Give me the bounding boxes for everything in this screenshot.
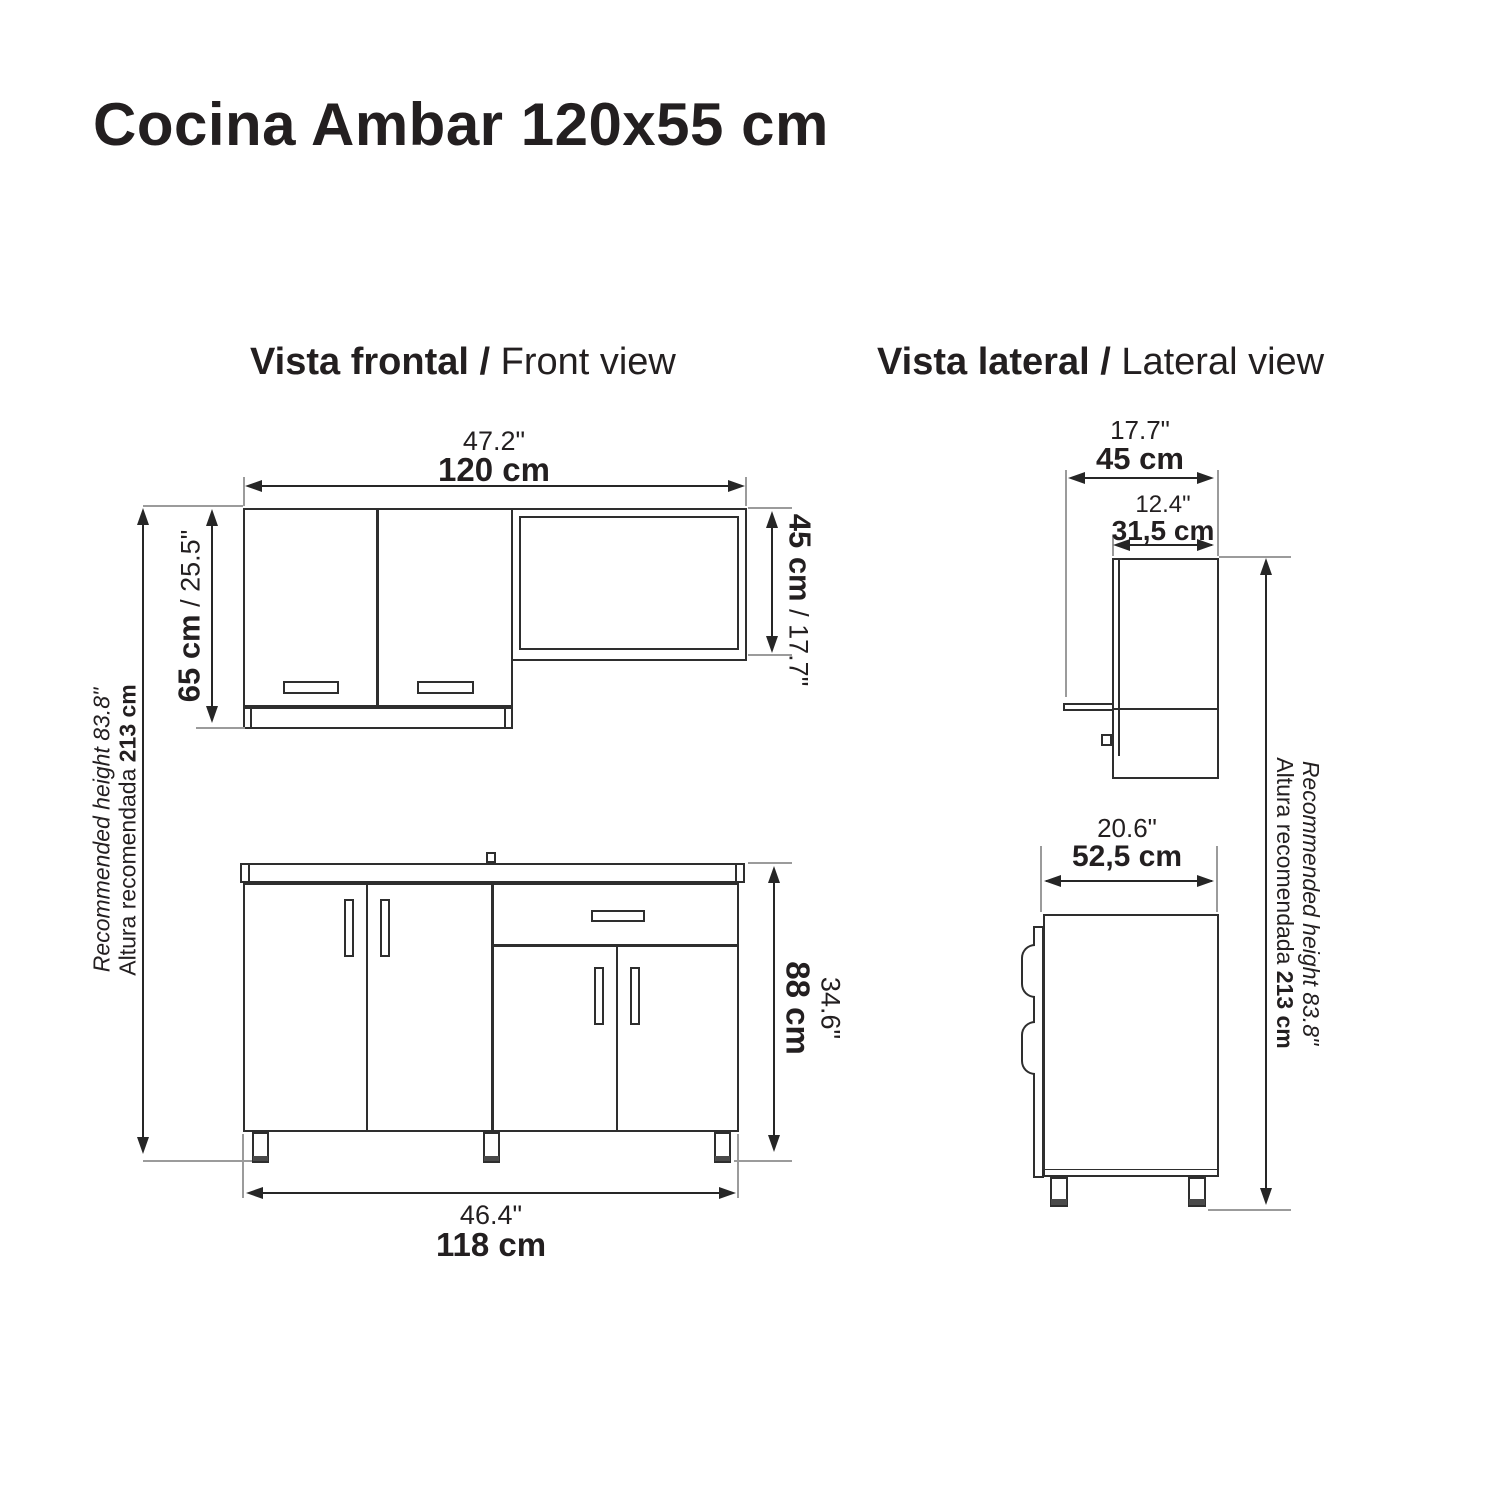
front-upper-door-handle-right — [417, 681, 474, 694]
height-cm: 45 cm — [782, 514, 817, 602]
countertop-cap-left — [248, 863, 250, 883]
extension-line — [196, 727, 245, 729]
dim-arrow — [766, 636, 778, 653]
overall-left-label: Recommended height 83.8" Altura recomend… — [89, 684, 141, 976]
leg-foot — [253, 1156, 268, 1161]
cabinet-depth-label-cm: 31,5 cm — [1112, 515, 1215, 546]
drawer-handle — [591, 910, 645, 922]
overall-right-label: Recommended height 83.8" Altura recomend… — [1271, 757, 1323, 1049]
extension-line — [748, 507, 792, 509]
strip-cap-left — [250, 707, 252, 729]
front-base-door-divider-left — [366, 885, 368, 1130]
leg-foot — [1051, 1199, 1067, 1205]
extension-line — [143, 1160, 252, 1162]
dim-arrow — [766, 511, 778, 528]
upper-right-height-label: 45 cm / 17.7" — [782, 514, 817, 687]
front-base-door-divider-right — [616, 947, 618, 1130]
dim-arrow — [206, 509, 218, 526]
front-heading-primary: Vista frontal — [250, 341, 469, 383]
recommended-height-en: Recommended height 83.8" — [1297, 757, 1323, 1049]
dim-arrow — [1260, 558, 1272, 575]
height-in: 25.5" — [176, 530, 206, 592]
lateral-upper-door-line — [1118, 558, 1120, 756]
recommended-height-es: Altura recomendada 213 cm — [1271, 757, 1297, 1049]
recommended-height-en: Recommended height 83.8" — [89, 684, 115, 976]
dim-arrow — [728, 480, 745, 492]
dim-lateral-depth-line — [1071, 477, 1211, 479]
front-base-section-divider — [491, 885, 494, 1130]
front-upper-door-divider — [376, 508, 379, 707]
front-view-heading: Vista frontal / Front view — [250, 341, 676, 384]
front-open-shelf — [511, 508, 747, 661]
base-height-in: 34.6" — [815, 961, 845, 1055]
leg-foot — [1189, 1199, 1205, 1205]
base-door-handle-2 — [380, 899, 390, 957]
front-upper-base-strip — [243, 707, 513, 729]
front-heading-secondary: Front view — [501, 341, 676, 383]
base-width-label-cm: 118 cm — [436, 1227, 546, 1264]
heading-separator: / — [1090, 341, 1122, 383]
extension-line — [1217, 470, 1219, 556]
height-cm: 65 cm — [172, 614, 207, 702]
lateral-base-leg-front — [1050, 1177, 1068, 1207]
faucet-knob — [486, 852, 496, 863]
lateral-base-leg-back — [1188, 1177, 1206, 1207]
dim-arrow — [1197, 875, 1214, 887]
lateral-shelf-bar — [1063, 703, 1114, 711]
dim-arrow — [1068, 472, 1085, 484]
dim-overall-right-line — [1265, 563, 1267, 1200]
lateral-heading-primary: Vista lateral — [877, 341, 1090, 383]
base-door-handle-4 — [630, 967, 640, 1025]
dim-arrow — [137, 1137, 149, 1154]
dim-arrow — [719, 1187, 736, 1199]
lateral-handle-arc-top — [1021, 944, 1035, 998]
heading-separator: / — [469, 341, 501, 383]
front-upper-door-handle-left — [283, 681, 339, 694]
front-width-label-cm: 120 cm — [438, 452, 550, 489]
lateral-upper-shelf-line — [1112, 708, 1219, 710]
dim-arrow — [137, 508, 149, 525]
lateral-base-bottom-line — [1045, 1169, 1217, 1170]
dim-base-width-line — [250, 1192, 732, 1194]
extension-line — [745, 477, 747, 506]
extension-line — [1219, 556, 1291, 558]
lateral-knob — [1101, 734, 1112, 746]
dim-overall-left-line — [142, 513, 144, 1150]
extension-line — [1208, 1209, 1291, 1211]
base-door-handle-3 — [594, 967, 604, 1025]
front-base-leg-left — [252, 1132, 269, 1163]
dim-base-depth-line — [1046, 880, 1212, 882]
label-separator: / — [783, 602, 813, 625]
dim-arrow — [768, 1135, 780, 1152]
recommended-height-es: Altura recomendada 213 cm — [115, 684, 141, 976]
label-separator: / — [176, 592, 206, 615]
leg-foot — [484, 1156, 499, 1161]
dim-arrow — [1260, 1188, 1272, 1205]
base-height-label: 34.6" 88 cm — [778, 961, 845, 1055]
lateral-base-cabinet — [1043, 914, 1219, 1177]
base-height-cm: 88 cm — [778, 961, 815, 1055]
dim-arrow — [1197, 472, 1214, 484]
lateral-handle-arc-bottom — [1021, 1021, 1035, 1075]
front-open-shelf-inner — [519, 516, 739, 650]
dim-arrow — [206, 706, 218, 723]
lateral-upper-cabinet — [1112, 558, 1219, 779]
lateral-heading-secondary: Lateral view — [1121, 341, 1324, 383]
dimension-diagram: Cocina Ambar 120x55 cm Vista frontal / F… — [0, 0, 1500, 1500]
base-depth-label-in: 20.6" — [1097, 814, 1157, 843]
extension-line — [1065, 470, 1067, 697]
front-base-leg-center — [483, 1132, 500, 1163]
dim-upper-left-height-line — [211, 514, 213, 718]
dim-arrow — [246, 1187, 263, 1199]
dim-arrow — [768, 866, 780, 883]
dim-upper-right-height-line — [771, 514, 773, 650]
base-depth-label-cm: 52,5 cm — [1072, 840, 1182, 874]
strip-cap-right — [504, 707, 506, 729]
dim-arrow — [245, 480, 262, 492]
front-base-leg-right — [714, 1132, 731, 1163]
extension-line — [734, 1160, 792, 1162]
page-title: Cocina Ambar 120x55 cm — [93, 90, 829, 159]
height-in: 17.7" — [783, 624, 813, 686]
lateral-view-heading: Vista lateral / Lateral view — [877, 341, 1324, 384]
extension-line — [737, 1134, 739, 1198]
extension-line — [1040, 846, 1042, 912]
dim-base-height-line — [773, 872, 775, 1146]
leg-foot — [715, 1156, 730, 1161]
extension-line — [242, 1134, 244, 1198]
upper-left-height-label: 65 cm / 25.5" — [173, 530, 208, 703]
extension-line — [143, 505, 243, 507]
extension-line — [1216, 846, 1218, 912]
countertop-cap-right — [735, 863, 737, 883]
extension-line — [748, 862, 792, 864]
lateral-depth-label-cm: 45 cm — [1096, 442, 1184, 477]
dim-arrow — [1044, 875, 1061, 887]
front-base-countertop — [240, 863, 745, 883]
base-door-handle-1 — [344, 899, 354, 957]
